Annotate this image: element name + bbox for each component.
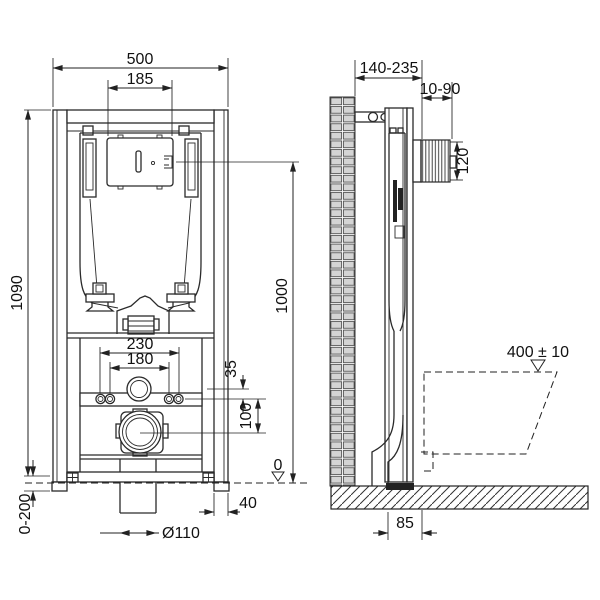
dim-foot-width-label: 40	[239, 495, 257, 512]
waste-outlet	[116, 409, 168, 456]
floor-section	[331, 486, 588, 509]
dim-overall-height-label: 1090	[9, 275, 26, 311]
wc-pan-outline	[421, 372, 557, 471]
datum-triangle-icon	[272, 472, 284, 481]
dim-actuation-height-label: 1000	[274, 278, 291, 314]
side-view: 140-235 10-90 120 400 ± 10 85	[330, 60, 588, 540]
frame-rail-right	[214, 110, 228, 482]
flush-valve-mechanism	[393, 180, 397, 222]
datum-level-label: 0	[274, 457, 283, 474]
drain-pipe-stub	[120, 459, 156, 513]
technical-drawing-page: 500 185 1090 0-200 230	[0, 0, 600, 600]
anchor-plate-left	[67, 473, 78, 482]
dim-bowl-height-label: 400 ± 10	[507, 344, 569, 361]
dim-overall-height: 1090	[9, 110, 51, 476]
front-view: 500 185 1090 0-200 230	[9, 51, 308, 542]
wall-section	[330, 97, 355, 486]
dim-leg-adjustment-label: 0-200	[17, 493, 34, 534]
flush-pipe-port	[127, 377, 151, 401]
dim-leg-adjustment: 0-200	[17, 460, 50, 534]
dim-flush-plate-height-label: 120	[455, 148, 472, 175]
hanger-rod-right	[185, 139, 198, 197]
dim-overall-width-label: 500	[127, 51, 154, 68]
flush-plate-housing	[413, 140, 456, 182]
dim-frame-depth-label: 140-235	[360, 60, 419, 77]
dim-finished-wall-label: 10-90	[420, 81, 461, 98]
dim-outlet-diameter-label: Ø110	[162, 525, 200, 542]
top-crossbar	[67, 110, 214, 135]
dim-outlet-wall-distance-label: 85	[396, 515, 414, 532]
dim-actuation-height: 1000	[176, 162, 299, 483]
dim-fixing-inner-label: 180	[127, 351, 154, 368]
dim-flush-window-width: 185	[108, 71, 172, 136]
dim-outlet-wall-distance: 85	[373, 510, 437, 540]
bottom-crossbar	[67, 472, 214, 482]
frame-front-plate	[407, 108, 413, 482]
bowl-level-triangle-icon	[531, 360, 545, 371]
dim-outlet-drop-label: 100	[238, 403, 255, 430]
hanger-rod-left	[83, 139, 96, 197]
dim-outlet-diameter: Ø110	[100, 525, 200, 542]
dim-flush-window-width-label: 185	[127, 71, 154, 88]
anchor-plate-right	[203, 473, 214, 482]
datum-marker: 0	[272, 457, 284, 481]
dim-foot-width: 40	[199, 493, 257, 516]
dim-flush-pipe-offset-label: 35	[223, 360, 240, 378]
outlet-bend-bracket	[117, 296, 169, 334]
frame-foot-side	[386, 483, 414, 490]
lower-crossrail	[80, 455, 202, 459]
dim-finished-wall: 10-90	[420, 81, 461, 139]
flush-access-panel	[107, 135, 173, 189]
installation-frame-drawing: 500 185 1090 0-200 230	[0, 0, 600, 600]
frame-rail-left	[53, 110, 67, 482]
push-rod-slot	[136, 151, 141, 172]
dim-bowl-height: 400 ± 10	[507, 344, 569, 371]
